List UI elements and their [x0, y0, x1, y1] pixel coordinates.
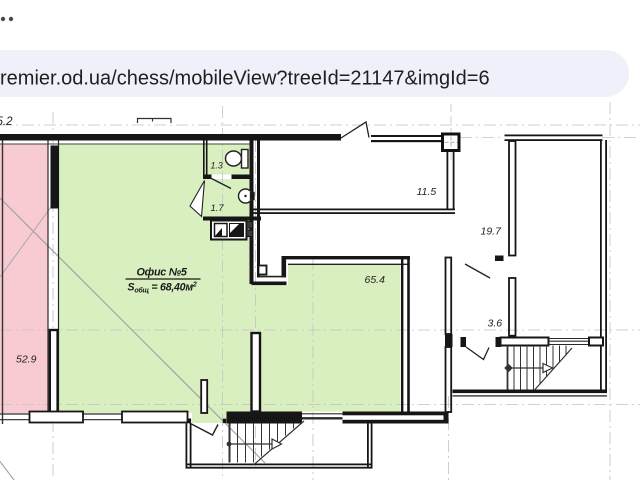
svg-text:3.6: 3.6 [488, 318, 503, 330]
svg-text:remier.od.ua/chess/mobileView?: remier.od.ua/chess/mobileView?treeId=211… [0, 68, 490, 90]
svg-text:19.7: 19.7 [481, 226, 503, 238]
svg-text:65.4: 65.4 [365, 274, 386, 286]
svg-text:Офис №5: Офис №5 [137, 267, 188, 279]
svg-text:52.9: 52.9 [16, 354, 37, 366]
svg-text:5.2: 5.2 [0, 116, 13, 128]
svg-text:1.7: 1.7 [211, 203, 225, 214]
svg-text:1.3: 1.3 [211, 161, 223, 171]
svg-text:11.5: 11.5 [417, 186, 437, 198]
